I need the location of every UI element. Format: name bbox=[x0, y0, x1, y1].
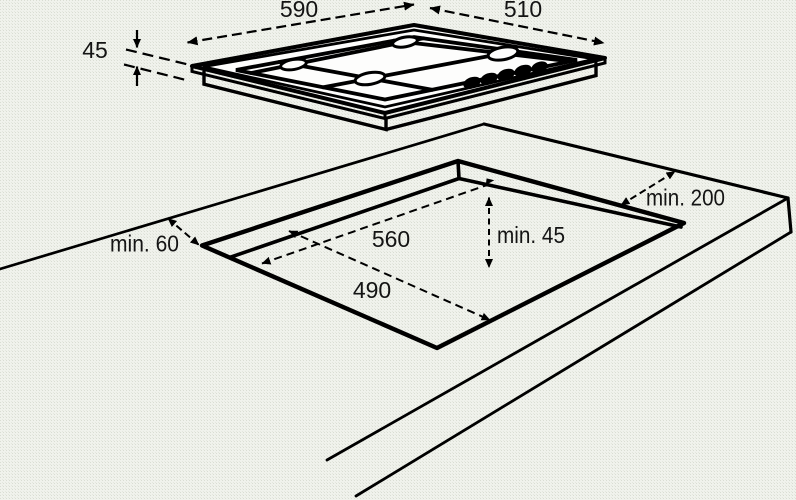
svg-text:min. 45: min. 45 bbox=[497, 222, 565, 248]
svg-text:min. 60: min. 60 bbox=[110, 231, 179, 257]
svg-text:490: 490 bbox=[353, 277, 391, 303]
svg-text:560: 560 bbox=[372, 226, 410, 252]
svg-text:510: 510 bbox=[504, 0, 542, 22]
svg-text:min. 200: min. 200 bbox=[646, 185, 725, 211]
svg-text:590: 590 bbox=[280, 0, 318, 22]
svg-text:45: 45 bbox=[82, 37, 108, 63]
